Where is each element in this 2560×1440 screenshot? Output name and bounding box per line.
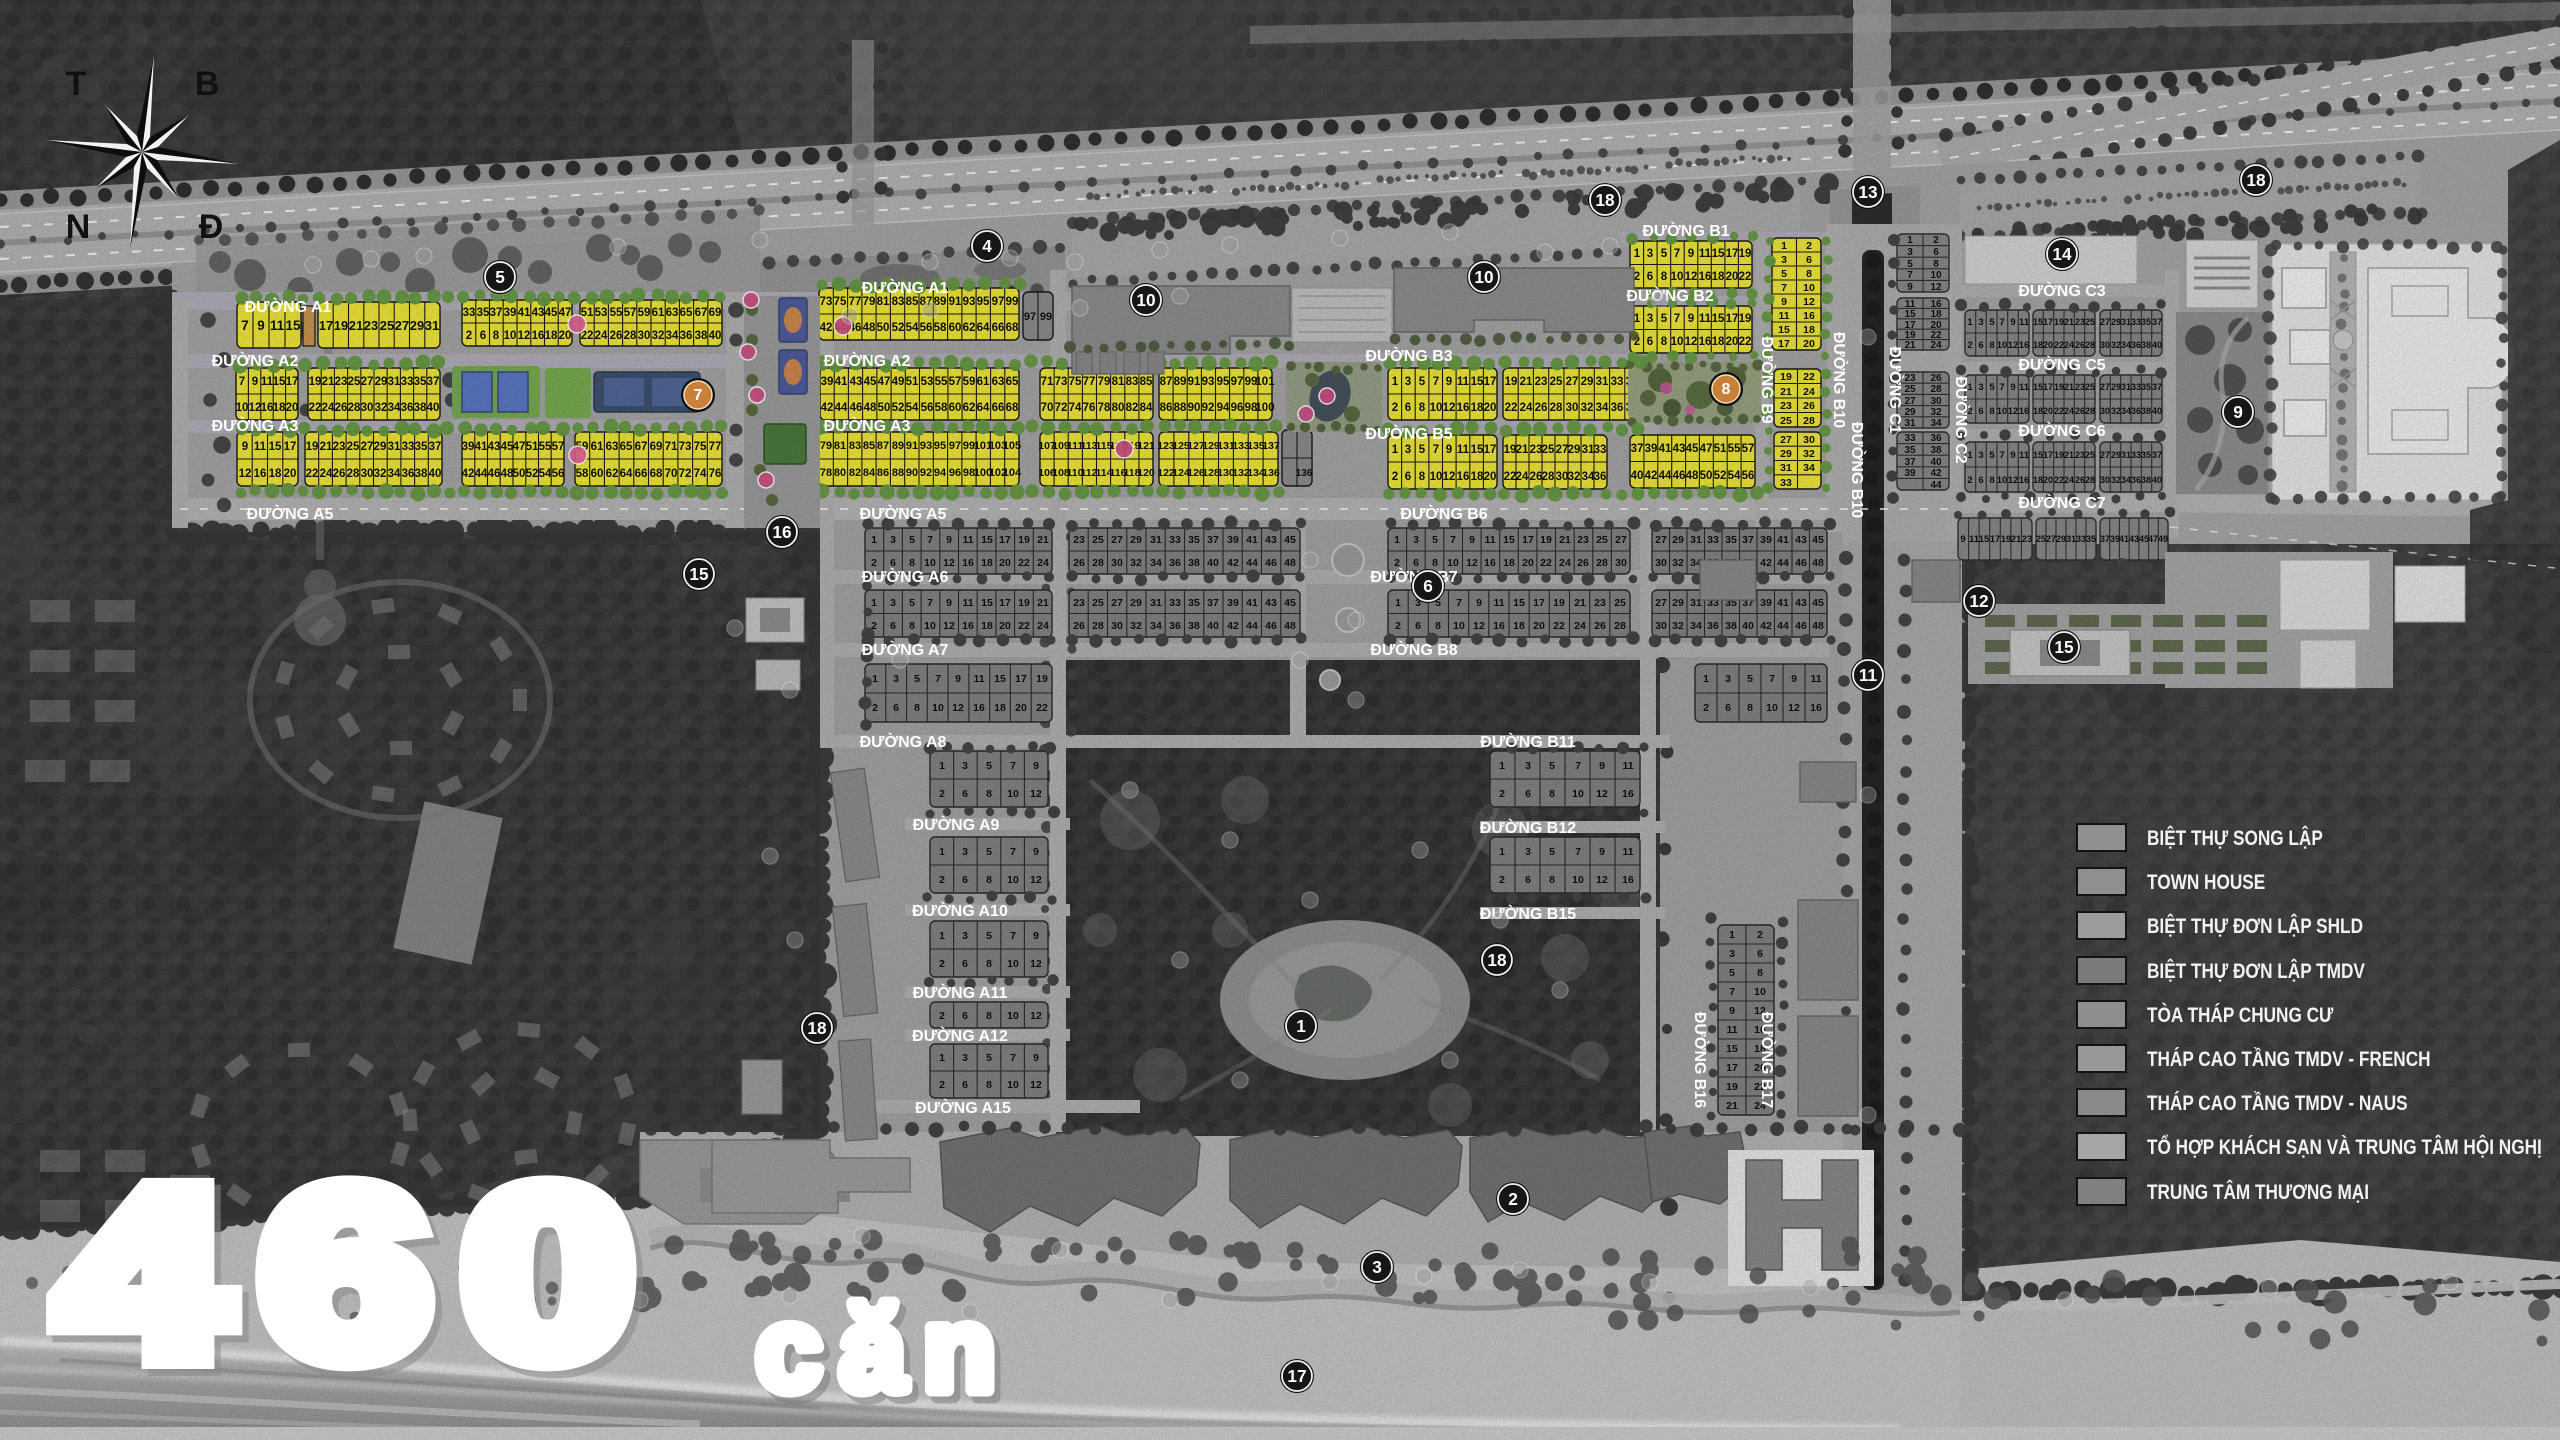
svg-text:THÁP CAO TẦNG TMDV - NAUS: THÁP CAO TẦNG TMDV - NAUS [2147,1091,2408,1115]
svg-text:TOWN HOUSE: TOWN HOUSE [2147,872,2265,895]
svg-text:ĐƯỜNG A8: ĐƯỜNG A8 [860,732,947,751]
svg-text:ĐƯỜNG B2: ĐƯỜNG B2 [1626,286,1713,305]
svg-text:ĐƯỜNG B9: ĐƯỜNG B9 [1758,336,1777,423]
svg-text:BIỆT THỰ ĐƠN LẬP TMDV: BIỆT THỰ ĐƠN LẬP TMDV [2147,959,2365,983]
svg-text:8: 8 [1722,381,1731,398]
svg-text:căn: căn [756,1284,1013,1416]
svg-text:16: 16 [772,522,791,542]
svg-text:460: 460 [58,1140,666,1408]
svg-text:THÁP CAO TẦNG TMDV - FRENCH: THÁP CAO TẦNG TMDV - FRENCH [2147,1047,2431,1071]
svg-text:ĐƯỜNG C2: ĐƯỜNG C2 [1952,376,1971,463]
svg-text:ĐƯỜNG A6: ĐƯỜNG A6 [862,567,949,586]
svg-text:ĐƯỜNG C1: ĐƯỜNG C1 [1886,346,1905,433]
svg-text:15: 15 [2054,637,2074,657]
svg-text:15: 15 [689,564,709,584]
svg-text:TỔ HỢP KHÁCH SẠN VÀ TRUNG TÂM: TỔ HỢP KHÁCH SẠN VÀ TRUNG TÂM HỘI NGHỊ [2147,1135,2542,1159]
svg-text:Đ: Đ [199,208,224,246]
svg-text:ĐƯỜNG A5: ĐƯỜNG A5 [247,504,334,523]
svg-text:ĐƯỜNG A5: ĐƯỜNG A5 [860,504,947,523]
svg-text:ĐƯỜNG B16: ĐƯỜNG B16 [1691,1012,1710,1108]
svg-text:14: 14 [2052,244,2072,264]
svg-text:ĐƯỜNG A1: ĐƯỜNG A1 [862,278,949,297]
svg-text:18: 18 [1595,190,1615,210]
svg-text:ĐƯỜNG C5: ĐƯỜNG C5 [2018,355,2105,374]
svg-text:ĐƯỜNG B11: ĐƯỜNG B11 [1480,732,1575,751]
svg-text:T: T [66,65,87,103]
svg-text:ĐƯỜNG B10: ĐƯỜNG B10 [1830,332,1849,428]
svg-text:ĐƯỜNG A12: ĐƯỜNG A12 [912,1026,1008,1045]
svg-text:4: 4 [982,236,992,256]
svg-text:5: 5 [495,267,505,287]
svg-text:N: N [66,208,91,246]
svg-text:3: 3 [1372,1257,1382,1277]
svg-text:ĐƯỜNG B6: ĐƯỜNG B6 [1400,504,1487,523]
svg-text:ĐƯỜNG A3: ĐƯỜNG A3 [212,416,299,435]
svg-text:ĐƯỜNG A15: ĐƯỜNG A15 [915,1098,1011,1117]
svg-text:ĐƯỜNG B12: ĐƯỜNG B12 [1480,818,1576,837]
svg-text:7: 7 [694,387,703,404]
svg-text:1: 1 [1296,1016,1306,1036]
svg-text:18: 18 [807,1018,827,1038]
svg-text:ĐƯỜNG A9: ĐƯỜNG A9 [913,815,1000,834]
svg-text:18: 18 [1487,950,1507,970]
svg-text:2: 2 [1508,1189,1518,1209]
svg-text:ĐƯỜNG A3: ĐƯỜNG A3 [824,416,911,435]
svg-text:ĐƯỜNG B3: ĐƯỜNG B3 [1365,346,1452,365]
svg-text:ĐƯỜNG B5: ĐƯỜNG B5 [1365,424,1452,443]
svg-text:ĐƯỜNG B1: ĐƯỜNG B1 [1642,221,1729,240]
svg-text:ĐƯỜNG A1: ĐƯỜNG A1 [245,297,332,316]
svg-text:17: 17 [1287,1366,1306,1386]
svg-text:ĐƯỜNG A11: ĐƯỜNG A11 [913,983,1008,1002]
svg-text:BIỆT THỰ SONG LẬP: BIỆT THỰ SONG LẬP [2147,826,2323,850]
svg-text:ĐƯỜNG C3: ĐƯỜNG C3 [2018,281,2105,300]
svg-text:10: 10 [1474,267,1493,287]
svg-text:TRUNG TÂM THƯƠNG MẠI: TRUNG TÂM THƯƠNG MẠI [2147,1180,2369,1204]
svg-text:ĐƯỜNG A10: ĐƯỜNG A10 [912,901,1008,920]
svg-text:10: 10 [1136,290,1155,310]
svg-text:ĐƯỜNG B8: ĐƯỜNG B8 [1370,640,1457,659]
svg-text:ĐƯỜNG A2: ĐƯỜNG A2 [824,351,911,370]
svg-text:TÒA THÁP CHUNG CƯ: TÒA THÁP CHUNG CƯ [2147,1003,2333,1027]
svg-text:12: 12 [1969,591,1988,611]
svg-text:BIỆT THỰ ĐƠN LẬP SHLD: BIỆT THỰ ĐƠN LẬP SHLD [2147,914,2363,938]
svg-text:9: 9 [2233,402,2243,422]
svg-text:18: 18 [2246,170,2266,190]
svg-text:ĐƯỜNG B17: ĐƯỜNG B17 [1758,1012,1777,1108]
svg-text:ĐƯỜNG C7: ĐƯỜNG C7 [2018,493,2105,512]
svg-text:ĐƯỜNG C6: ĐƯỜNG C6 [2018,421,2105,440]
svg-text:13: 13 [1858,182,1877,202]
svg-text:11: 11 [1859,665,1878,685]
svg-text:B: B [195,65,220,103]
svg-text:ĐƯỜNG A2: ĐƯỜNG A2 [212,351,299,370]
svg-text:6: 6 [1423,576,1433,596]
svg-text:ĐƯỜNG B10: ĐƯỜNG B10 [1848,422,1867,518]
